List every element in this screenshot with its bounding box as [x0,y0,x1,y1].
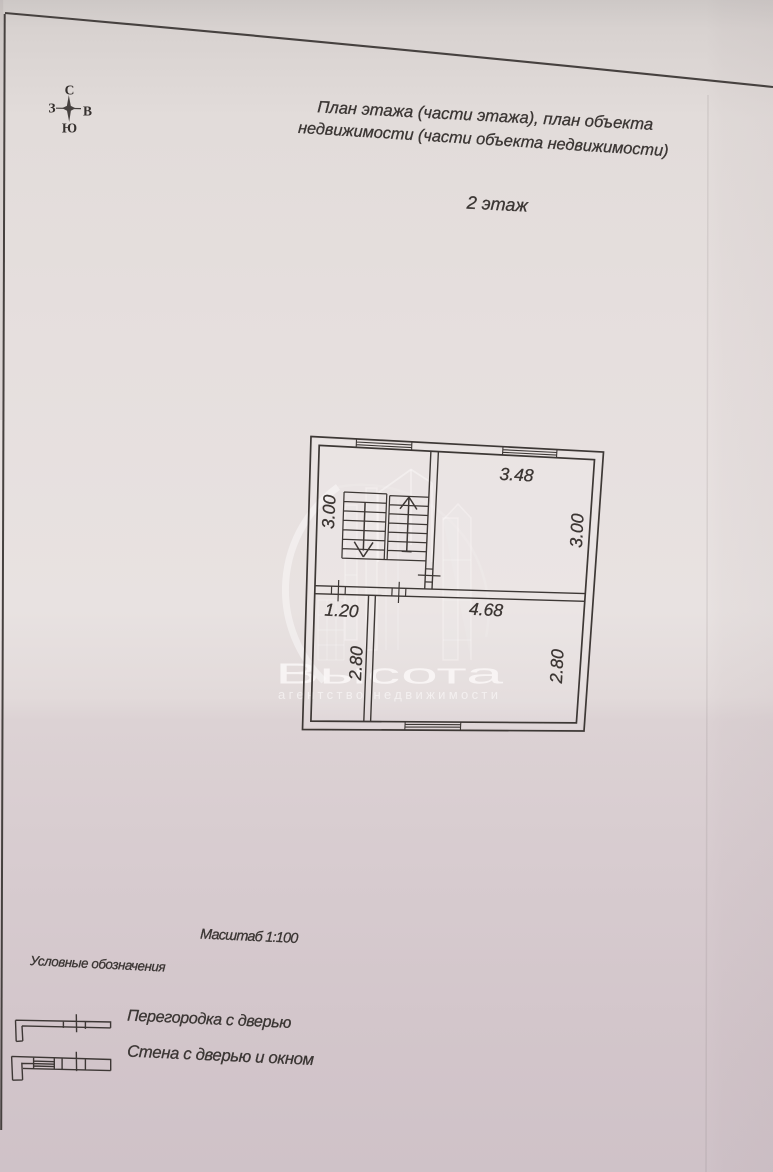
svg-text:С: С [65,83,75,98]
svg-text:2 этаж: 2 этаж [465,192,530,215]
svg-text:3.00: 3.00 [566,513,588,548]
svg-text:3.48: 3.48 [499,464,534,486]
svg-text:2.80: 2.80 [546,648,568,684]
svg-text:1.20: 1.20 [324,600,359,622]
svg-text:Ю: Ю [62,121,77,136]
svg-text:3.00: 3.00 [318,494,340,529]
svg-text:В: В [83,104,92,119]
svg-text:4.68: 4.68 [469,599,504,621]
svg-text:2.80: 2.80 [345,645,367,681]
svg-text:Высота: Высота [275,659,505,691]
svg-text:З: З [48,101,55,116]
